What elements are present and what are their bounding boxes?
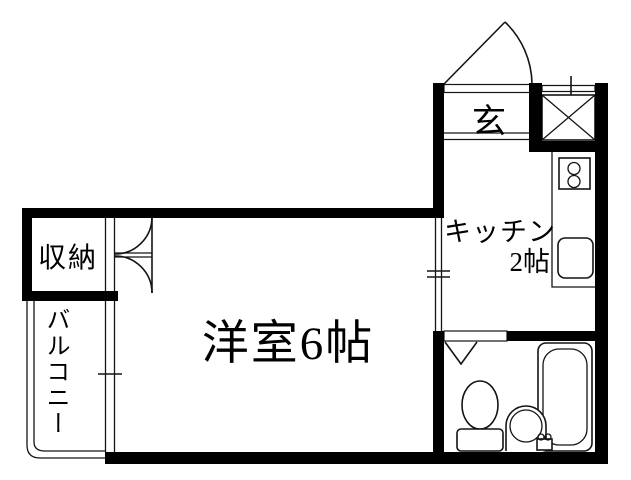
wall-kitchen-left xyxy=(433,83,444,215)
wall-top xyxy=(22,208,444,218)
kitchen-sink-icon xyxy=(558,238,593,278)
balcony-label: バルコニー xyxy=(43,307,73,437)
western-room-label: 洋室6帖 xyxy=(138,304,438,373)
bath-doorway xyxy=(444,331,507,341)
wall-bottom xyxy=(105,452,608,464)
wall-bath-top xyxy=(507,331,608,341)
entry-threshold xyxy=(444,85,530,93)
wall-right xyxy=(595,83,608,464)
entrance-label: 玄 xyxy=(459,94,519,143)
kitchen-size-label: 2帖 xyxy=(444,240,550,279)
floor-plan: 玄 キッチン 2帖 洋室6帖 収納 バルコニー xyxy=(0,0,631,480)
stove-icon xyxy=(559,158,590,189)
storage-label: 収納 xyxy=(30,236,106,276)
wall-storage-bottom xyxy=(22,291,118,301)
shaft-x-icon xyxy=(542,95,595,140)
